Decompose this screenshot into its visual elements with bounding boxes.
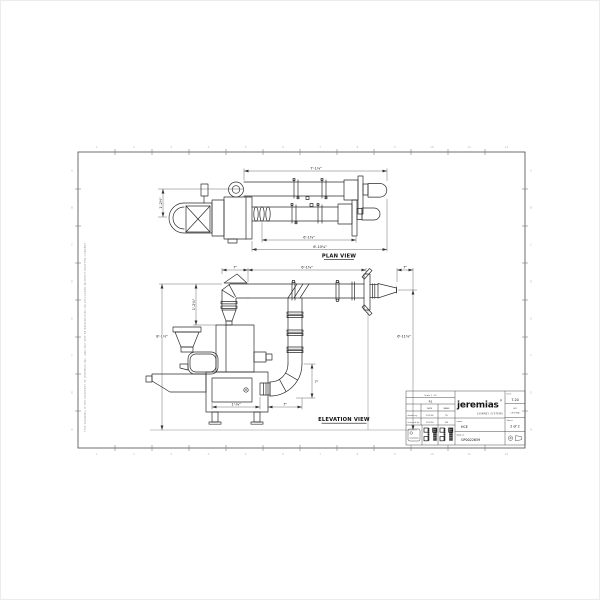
plan-elbow-circle	[229, 182, 244, 197]
elev-stub-duct	[260, 383, 270, 395]
elev-bottom-elbow	[260, 364, 302, 396]
svg-text:G: G	[71, 391, 73, 395]
tb-revision: R1	[429, 399, 433, 403]
svg-text:2: 2	[133, 452, 135, 456]
elev-cooling-tray	[152, 374, 206, 392]
elev-elbow-hood	[224, 274, 247, 283]
elev-reducer-cone	[222, 310, 236, 321]
elev-hopper-funnel	[175, 332, 199, 347]
plan-connector	[212, 200, 224, 236]
svg-text:5: 5	[245, 452, 247, 456]
elevation-view-label: ELEVATION VIEW	[318, 417, 370, 423]
svg-text:6: 6	[282, 145, 284, 149]
elev-chimney-housing	[216, 325, 254, 372]
plan-dim-bottom: 6'-10¼"	[313, 245, 327, 249]
svg-text:B: B	[530, 206, 532, 210]
tb-name-header: NAME	[443, 407, 450, 410]
svg-text:D: D	[71, 280, 73, 284]
plan-lower-joint	[338, 204, 352, 224]
svg-text:G: G	[530, 391, 532, 395]
plan-burner-inner-arc	[173, 207, 184, 229]
svg-text:C: C	[530, 243, 532, 247]
elev-dim-seven-b: 7"	[403, 265, 407, 269]
svg-text:9: 9	[394, 452, 396, 456]
svg-text:4: 4	[207, 452, 209, 456]
margin-disclaimer: THIS DRAWING IS THE PROPERTY OF JEREMIAS…	[83, 242, 87, 432]
svg-text:F: F	[71, 354, 73, 358]
plan-upper-joint	[344, 180, 358, 200]
svg-text:H: H	[530, 428, 532, 432]
qr-code-icon	[440, 428, 453, 441]
certification-stamp-icon	[408, 429, 420, 441]
svg-text:11: 11	[467, 452, 471, 456]
svg-text:9: 9	[394, 145, 396, 149]
tb-item-label: Item	[507, 393, 512, 396]
elev-dim-offset: 1'-2¾"	[192, 298, 196, 310]
svg-text:5: 5	[245, 145, 247, 149]
svg-text:8: 8	[356, 452, 358, 456]
drawing-sheet: 112233445566778899101011111212AABBCCDDEE…	[0, 0, 600, 600]
title-block: Scale 1 : 15 R1 DATE NAME drawn by 1/31/…	[406, 391, 525, 445]
plan-burner-stadium	[169, 203, 212, 233]
logo-registered-mark: ®	[500, 399, 503, 403]
plan-dim-top: 7'-1⅛"	[310, 166, 322, 170]
tb-sheet: 2 of 2	[510, 425, 519, 429]
plan-lower-wallplate	[352, 200, 357, 236]
plan-housing	[224, 197, 252, 239]
svg-text:3: 3	[170, 452, 172, 456]
tb-project-label: name	[457, 421, 464, 423]
svg-text:F: F	[530, 354, 532, 358]
svg-text:2: 2	[133, 145, 135, 149]
svg-text:7: 7	[319, 452, 321, 456]
elev-left-elbow	[222, 274, 248, 300]
elev-dim-seven-a: 7"	[233, 265, 237, 269]
tb-scale-note: Scale 1 : 15	[424, 395, 437, 397]
elev-left-riser	[221, 300, 237, 325]
tb-project: HCE	[461, 425, 468, 429]
svg-text:7: 7	[319, 145, 321, 149]
elev-wall-plate	[362, 269, 397, 316]
tb-material-2: LECOMA	[511, 412, 520, 415]
plan-flex-rings	[254, 207, 270, 221]
elev-side-box	[254, 352, 266, 362]
elev-dim-run: 6'-1⅜"	[301, 265, 313, 269]
elev-dim-outlet: 6'-11⅜"	[397, 334, 411, 338]
elevation-view: 7" 6'-1⅜" 7" 1'-2¾" 8'-1½" 6'-11⅜" 7" 1'…	[146, 265, 417, 430]
tb-sheet-label: Sheet	[507, 419, 513, 422]
tb-drawing-no: GP0022659	[461, 438, 480, 442]
elev-leg	[212, 412, 218, 422]
svg-text:1: 1	[96, 452, 98, 456]
elev-dim-elbow: 7"	[315, 380, 319, 384]
qr-code-icon	[424, 428, 437, 441]
plan-view: 7'-1⅛" 6'-1⅜" 6'-10¼" 1'-2½" PLAN VIEW	[158, 166, 387, 259]
screenshot-canvas: 112233445566778899101011111212AABBCCDDEE…	[0, 0, 600, 600]
logo-tagline: CHIMNEY SYSTEMS	[477, 413, 503, 416]
tb-drawn-date: 1/31/24	[425, 415, 434, 417]
svg-text:A: A	[530, 169, 532, 173]
tb-drawn-label: drawn by	[408, 414, 418, 417]
svg-text:12: 12	[505, 145, 509, 149]
elev-outlet-cone	[378, 284, 397, 299]
elev-dim-bottom-b: 7"	[283, 402, 287, 406]
tb-checked-date: 1/31/24	[425, 422, 434, 424]
plan-dim-mid: 6'-1⅜"	[303, 235, 315, 239]
svg-text:10: 10	[430, 145, 434, 149]
tb-checked-label: checked by	[408, 422, 421, 424]
svg-text:A: A	[71, 169, 73, 173]
svg-text:11: 11	[467, 145, 471, 149]
elev-spout	[180, 364, 188, 370]
tb-drawing-label: dwg no.	[457, 434, 466, 436]
tb-material-1: HD	[513, 408, 517, 410]
tb-drawn-name: TR	[445, 415, 448, 417]
elev-hopper-rim	[173, 327, 201, 332]
svg-text:1: 1	[96, 145, 98, 149]
svg-text:10: 10	[430, 452, 434, 456]
svg-text:E: E	[71, 317, 73, 321]
svg-text:3: 3	[170, 145, 172, 149]
svg-text:D: D	[530, 280, 532, 284]
elev-dim-height: 8'-1½"	[156, 334, 168, 338]
plan-dimensions: 7'-1⅛" 6'-1⅜" 6'-10¼" 1'-2½"	[158, 166, 387, 251]
plan-view-label: PLAN VIEW	[322, 253, 356, 259]
elev-junction-gores	[288, 284, 309, 298]
tb-date-header: DATE	[427, 407, 433, 410]
svg-text:6: 6	[282, 452, 284, 456]
plan-lower-cap	[362, 208, 380, 220]
plan-bracket	[201, 184, 208, 196]
elev-right-riser	[287, 298, 303, 364]
tb-item: 7.20	[511, 398, 518, 402]
tb-checked-name: MS	[445, 422, 449, 424]
elev-dim-bottom-a: 1'-⅛"	[231, 402, 241, 406]
svg-text:8: 8	[356, 145, 358, 149]
plan-dim-left: 1'-2½"	[159, 197, 163, 209]
jeremias-logo: jeremias	[456, 401, 499, 411]
svg-text:12: 12	[505, 452, 509, 456]
svg-text:C: C	[71, 243, 73, 247]
plan-upper-cap	[368, 184, 387, 198]
svg-text:E: E	[530, 317, 532, 321]
svg-text:4: 4	[207, 145, 209, 149]
svg-text:B: B	[71, 206, 73, 210]
projection-symbol-icon	[508, 436, 521, 441]
elev-leg	[254, 412, 260, 422]
svg-text:H: H	[71, 428, 73, 432]
